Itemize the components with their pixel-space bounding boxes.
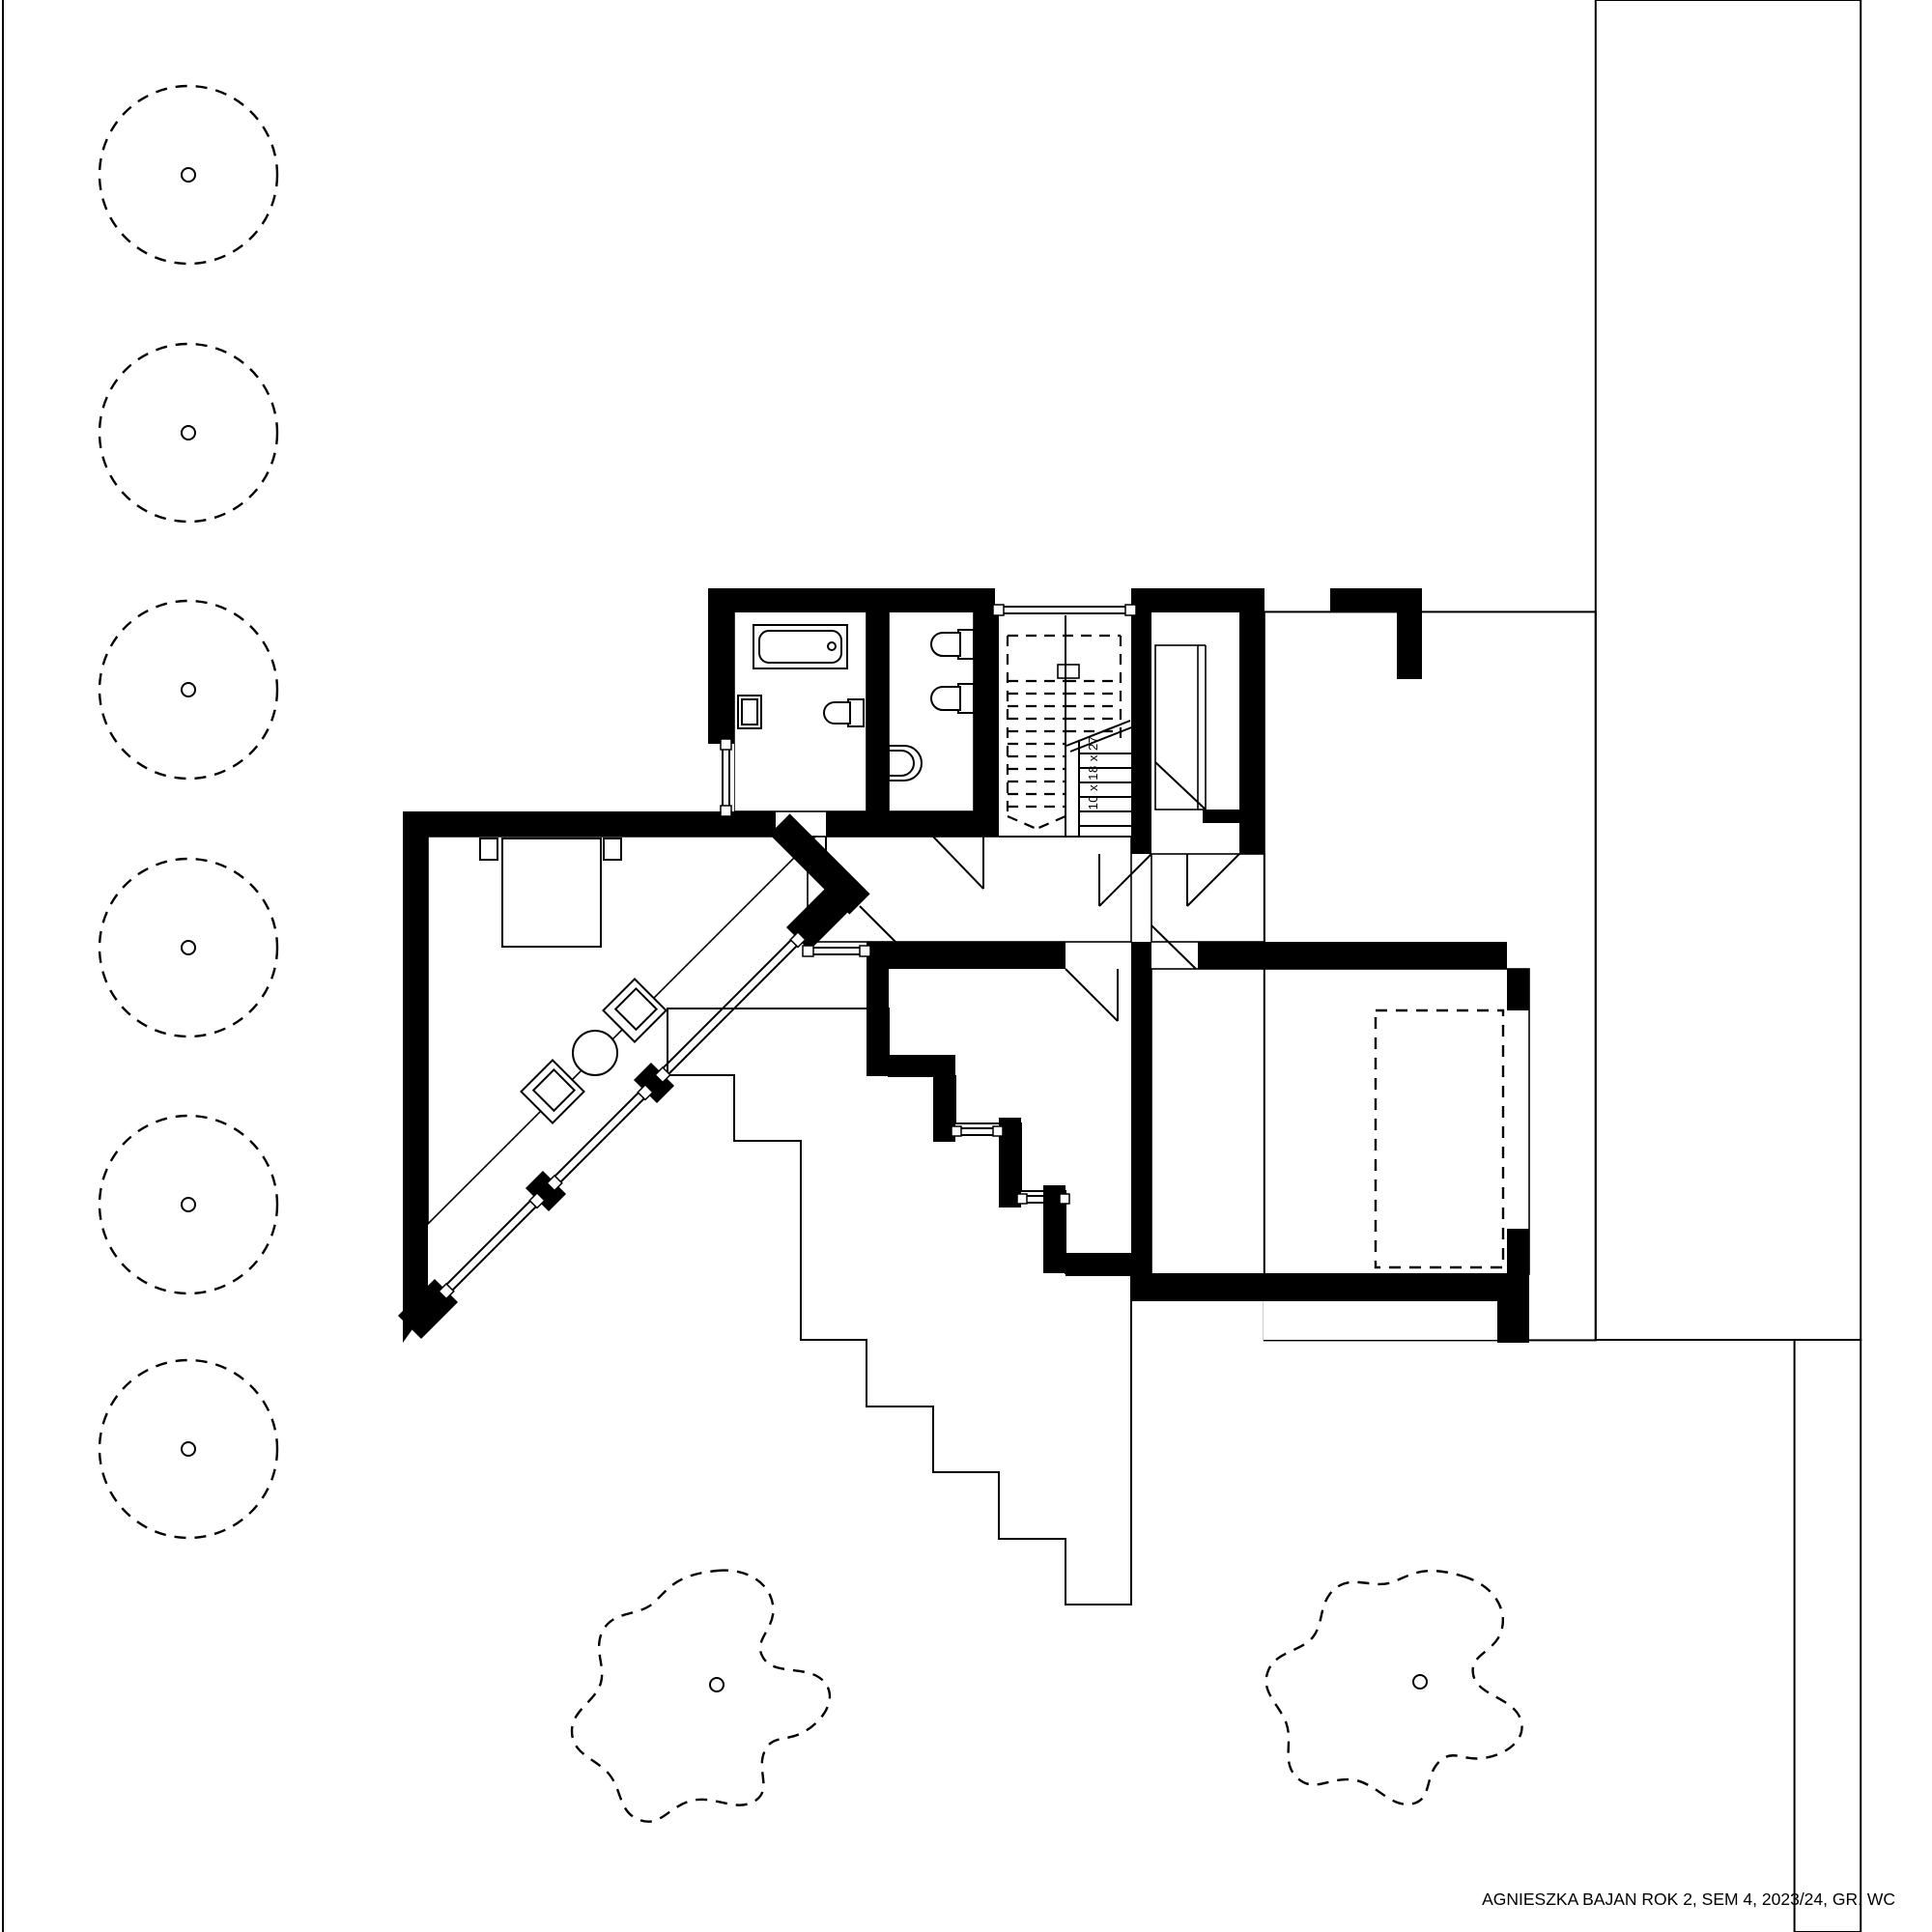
door-dining [1065,969,1118,1021]
tree-trunk [182,1198,195,1211]
wall-garage-south [1131,1273,1529,1301]
bathtub-drain [828,642,836,650]
tree-trunk [182,168,195,182]
window-step-1 [952,1126,1003,1136]
wall-garage-east-bottom [1507,1229,1529,1273]
nightstand-right [604,838,621,860]
shrub-outline-dashed [572,1571,830,1822]
wall-wc-stair [974,611,999,837]
stair-newel [1058,665,1079,678]
right-strip-grid [1795,1340,1861,1932]
bidet-inner [889,751,914,776]
toilet-bath-bowl [824,702,850,724]
stair-core: 10 x 18 x 27 [999,615,1134,837]
garage-floor-grid [1151,969,1529,1274]
toilet-wc1-bowl [931,633,960,656]
project-title-label: AGNIESZKA BAJAN ROK 2, SEM 4, 2023/24, G… [1482,1889,1895,1909]
wall-north-3-return [1397,612,1422,679]
shrubs-group [572,1521,1568,1851]
wall-step-h1 [867,1055,955,1076]
floor-plan-drawing: 10 x 18 x 27 [0,0,1932,1932]
window-diag-1 [439,1193,545,1299]
window-bath-west [708,739,734,816]
wall-entry-stub [1203,810,1239,823]
door-garage [1151,925,1196,969]
window-stair-north [993,605,1136,615]
stair-dimension-label: 10 x 18 x 27 [1086,736,1100,810]
wall-living-north [403,811,776,837]
wall-step-h2 [1065,1253,1131,1276]
east-paving-grid [1264,611,1596,1340]
wall-bath-wc [867,611,889,811]
nightstand-left [480,838,497,860]
pillar-garage-corner [1497,1301,1529,1343]
wall-north-1 [708,588,995,612]
tree-trunk [182,1442,195,1456]
tree-trunk [182,426,195,440]
car-pad-dashed [1376,1010,1503,1267]
wall-entry-east [1239,611,1264,854]
wall-north-3 [1330,588,1422,612]
sanitary-fixtures [738,625,974,781]
tree-trunk [182,683,195,696]
wall-bath-west [708,588,734,744]
trees-group [99,86,277,1538]
wall-garage-west [1131,942,1151,1276]
wall-north-2 [1131,588,1264,612]
window-diag-3 [655,932,806,1083]
bed [502,838,601,947]
wall-garage-east-top [1507,969,1529,1010]
wall-garage-north [1198,942,1507,969]
round-table [573,1031,617,1075]
wall-step-v1 [867,969,889,1055]
door-entry-1 [1099,854,1151,906]
wall-entry-west [1131,611,1151,854]
shrub-outline-dashed [1235,1521,1568,1851]
shrub-center [710,1678,724,1691]
living-room-floor-grid [428,837,815,1224]
door-entry-2 [1187,854,1239,906]
wall-living-west [403,811,428,1299]
door-wc [933,837,983,889]
wall-hall-south [867,942,1065,969]
patio-grid [1596,0,1861,1340]
window-hall-west [803,946,870,956]
tree-trunk [182,941,195,954]
toilet-wc2-bowl [931,687,960,710]
shrub-center [1413,1675,1427,1689]
sink-inner [742,699,757,724]
armchair-2 [521,1060,583,1122]
terrace-steps-grid [668,1009,1131,1605]
paving-gap [1264,1301,1529,1340]
armchair-1 [603,979,666,1041]
wall-bath-south [826,811,999,837]
drawing-sheet: 10 x 18 x 27 [0,0,1932,1932]
porch-floor-grid [1151,854,1264,942]
